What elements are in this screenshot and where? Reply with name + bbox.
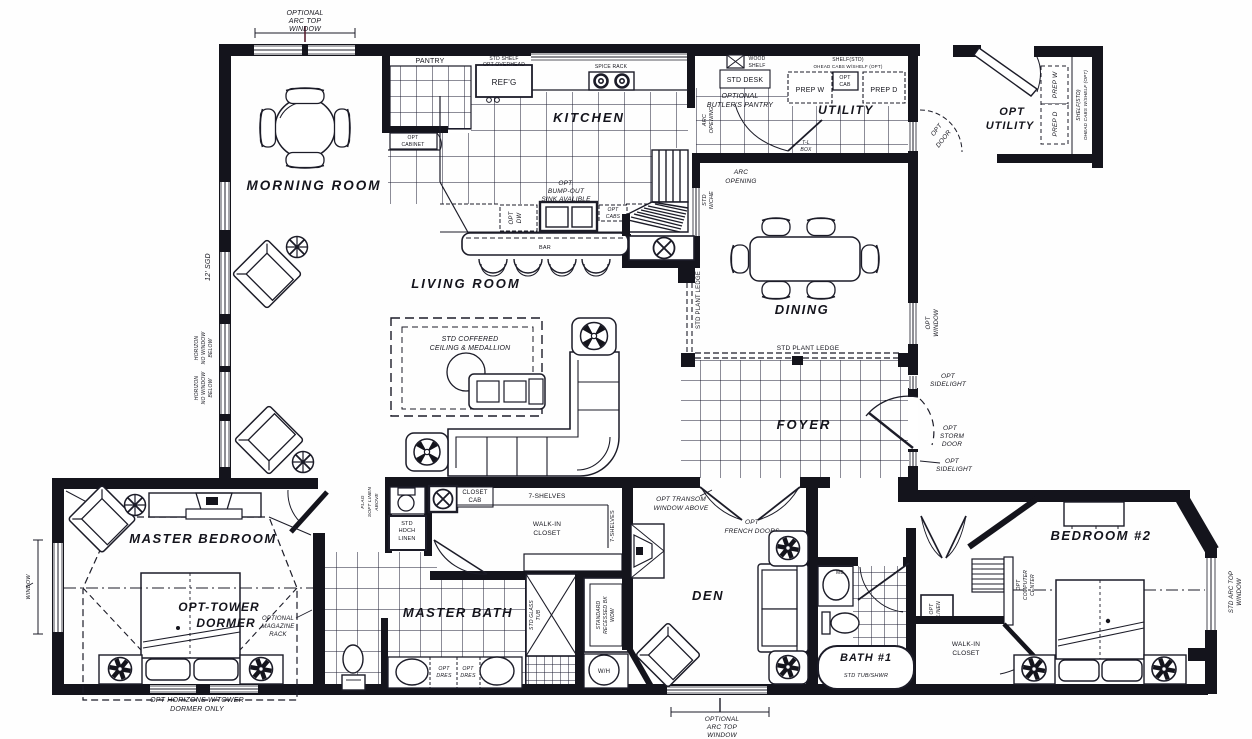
svg-text:BATH #1: BATH #1	[840, 652, 892, 664]
svg-text:DINING: DINING	[775, 302, 830, 317]
svg-text:PREP D: PREP D	[870, 87, 897, 94]
svg-text:TUB: TUB	[536, 609, 542, 620]
svg-text:LINEN: LINEN	[398, 536, 415, 542]
svg-text:CAB: CAB	[469, 498, 482, 504]
svg-text:WOOD: WOOD	[749, 56, 766, 62]
svg-text:NICHE: NICHE	[709, 191, 715, 209]
svg-text:OPTIONAL: OPTIONAL	[722, 93, 759, 100]
svg-text:BOX: BOX	[800, 147, 812, 153]
svg-text:12' SGD: 12' SGD	[205, 253, 212, 281]
svg-text:OPT.: OPT.	[558, 180, 573, 187]
svg-text:WINDOW: WINDOW	[707, 732, 737, 739]
svg-text:WALK-IN: WALK-IN	[533, 521, 561, 528]
svg-text:BAR: BAR	[539, 245, 551, 251]
svg-text:STD: STD	[702, 194, 708, 206]
svg-text:CLOSET: CLOSET	[533, 530, 560, 537]
svg-text:MORNING ROOM: MORNING ROOM	[247, 178, 382, 193]
svg-text:SHELF(STD): SHELF(STD)	[832, 57, 864, 63]
svg-text:OPT-TOWER: OPT-TOWER	[178, 600, 259, 614]
svg-text:SHELF: SHELF	[748, 63, 765, 69]
svg-text:OPT: OPT	[941, 373, 956, 380]
svg-text:CAB: CAB	[839, 82, 851, 88]
svg-text:MB: MB	[836, 570, 844, 576]
svg-text:T-L: T-L	[802, 140, 810, 146]
svg-text:WINDOW: WINDOW	[934, 308, 940, 337]
svg-text:DOOR: DOOR	[942, 441, 962, 448]
svg-text:RACK: RACK	[269, 632, 287, 638]
svg-text:CABINET: CABINET	[401, 142, 424, 148]
svg-text:HDCH: HDCH	[399, 528, 416, 534]
svg-text:UTILITY: UTILITY	[986, 120, 1035, 132]
svg-text:FOYER: FOYER	[777, 417, 832, 432]
svg-text:NO WINDOW: NO WINDOW	[201, 331, 207, 365]
svg-text:SPICE RACK: SPICE RACK	[595, 64, 628, 70]
svg-text:SOFT LINEN: SOFT LINEN	[367, 487, 373, 518]
svg-text:7-SHELVES: 7-SHELVES	[610, 510, 616, 542]
svg-text:PANTRY: PANTRY	[416, 58, 445, 65]
svg-text:ABOVE: ABOVE	[374, 493, 380, 512]
svg-text:CENTER: CENTER	[1030, 574, 1036, 596]
svg-text:OPT: OPT	[999, 106, 1025, 118]
svg-text:OPT: OPT	[408, 135, 419, 141]
svg-text:UTILITY: UTILITY	[818, 103, 874, 117]
svg-text:WINDOW: WINDOW	[289, 26, 322, 33]
svg-text:STD PLANT LEDGE: STD PLANT LEDGE	[696, 271, 702, 329]
svg-text:HORIZON: HORIZON	[194, 336, 200, 361]
svg-text:OPT: OPT	[438, 666, 450, 672]
svg-text:DRES: DRES	[436, 673, 452, 679]
svg-text:SHELF(STD): SHELF(STD)	[1076, 89, 1082, 121]
svg-text:OPT: OPT	[839, 75, 851, 81]
svg-text:PREP W: PREP W	[1052, 71, 1059, 98]
svg-text:MASTER BEDROOM: MASTER BEDROOM	[129, 531, 276, 546]
svg-text:OPENING: OPENING	[709, 106, 715, 133]
svg-text:WDW: WDW	[610, 607, 616, 622]
svg-text:OPT HORIZONS W/TOWER: OPT HORIZONS W/TOWER	[150, 697, 244, 704]
svg-text:OPT: OPT	[1016, 579, 1022, 591]
svg-text:BUTLER'S PANTRY: BUTLER'S PANTRY	[707, 102, 774, 109]
svg-text:REF'G: REF'G	[492, 78, 517, 87]
svg-text:W/H: W/H	[598, 669, 610, 675]
svg-text:CEILING & MEDALLION: CEILING & MEDALLION	[430, 345, 512, 352]
svg-text:STD TUB/SHWR: STD TUB/SHWR	[844, 673, 888, 679]
svg-text:OPT: OPT	[745, 519, 760, 526]
svg-text:RECESSED BK: RECESSED BK	[603, 596, 609, 634]
svg-text:ARC TOP: ARC TOP	[706, 724, 738, 731]
svg-text:STD: STD	[401, 521, 413, 527]
svg-text:OPT: OPT	[929, 603, 935, 615]
svg-text:STD PLANT LEDGE: STD PLANT LEDGE	[777, 345, 840, 352]
svg-text:LINEN: LINEN	[936, 601, 942, 617]
svg-text:DORMER ONLY: DORMER ONLY	[170, 706, 225, 713]
svg-text:STD COFFERED: STD COFFERED	[442, 336, 499, 343]
svg-text:OPT: OPT	[926, 315, 932, 329]
svg-text:DRES: DRES	[460, 673, 476, 679]
svg-text:CLOSET: CLOSET	[462, 490, 487, 496]
svg-text:STD GLASS: STD GLASS	[529, 600, 535, 630]
svg-text:PREP W: PREP W	[796, 87, 825, 94]
svg-text:CABS: CABS	[606, 214, 621, 220]
svg-text:STANDARD: STANDARD	[596, 600, 602, 629]
svg-text:MAGAZINE: MAGAZINE	[262, 624, 296, 630]
svg-text:OPTIONAL: OPTIONAL	[287, 10, 324, 17]
svg-text:FLAG: FLAG	[360, 495, 366, 508]
svg-text:7-SHELVES: 7-SHELVES	[528, 493, 566, 500]
svg-text:NO WINDOW: NO WINDOW	[201, 371, 207, 405]
svg-text:DW: DW	[517, 212, 523, 224]
svg-text:COMPUTER: COMPUTER	[1023, 570, 1029, 600]
svg-text:OPTIONAL: OPTIONAL	[262, 616, 294, 622]
svg-text:ARC: ARC	[702, 114, 708, 127]
svg-text:OPT: OPT	[509, 210, 515, 224]
svg-text:SIDELIGHT: SIDELIGHT	[930, 381, 967, 388]
svg-text:OHEAD CABS W/SHELF (OPT): OHEAD CABS W/SHELF (OPT)	[813, 64, 882, 69]
svg-text:WINDOW: WINDOW	[1237, 577, 1243, 606]
svg-text:BUMP-OUT: BUMP-OUT	[548, 188, 585, 195]
svg-text:WALK-IN: WALK-IN	[952, 641, 980, 648]
svg-text:OPT: OPT	[608, 207, 620, 213]
svg-text:DEN: DEN	[692, 588, 724, 603]
svg-text:BELOW: BELOW	[208, 377, 214, 397]
svg-text:OPTIONAL: OPTIONAL	[705, 716, 740, 723]
svg-text:OPT: OPT	[462, 666, 474, 672]
svg-text:OPT TRANSOM: OPT TRANSOM	[656, 496, 706, 503]
svg-text:BEDROOM #2: BEDROOM #2	[1051, 528, 1152, 543]
svg-text:WINDOW ABOVE: WINDOW ABOVE	[654, 505, 709, 512]
svg-text:OPENING: OPENING	[725, 178, 756, 185]
svg-text:BELOW: BELOW	[208, 337, 214, 357]
svg-text:PREP D: PREP D	[1052, 111, 1059, 136]
svg-text:OPT: OPT	[943, 425, 958, 432]
svg-text:STORM: STORM	[940, 433, 965, 440]
svg-text:ARC: ARC	[733, 169, 748, 176]
svg-text:MASTER BATH: MASTER BATH	[403, 605, 513, 620]
svg-text:OPT: OPT	[945, 458, 960, 465]
svg-text:CLOSET: CLOSET	[952, 650, 979, 657]
svg-text:ARC TOP: ARC TOP	[288, 18, 322, 25]
svg-text:STD ARC TOP: STD ARC TOP	[1229, 571, 1235, 613]
svg-text:DORMER: DORMER	[196, 616, 255, 630]
svg-text:HORIZON: HORIZON	[194, 376, 200, 401]
svg-text:OHEAD CABS W/SHELF (OPT): OHEAD CABS W/SHELF (OPT)	[1083, 70, 1088, 141]
svg-text:OPT OVERHEAD: OPT OVERHEAD	[483, 62, 525, 68]
svg-text:KITCHEN: KITCHEN	[553, 110, 625, 125]
svg-text:STD DESK: STD DESK	[727, 77, 764, 84]
svg-text:SIDELIGHT: SIDELIGHT	[936, 466, 973, 473]
svg-text:LIVING ROOM: LIVING ROOM	[411, 276, 520, 291]
